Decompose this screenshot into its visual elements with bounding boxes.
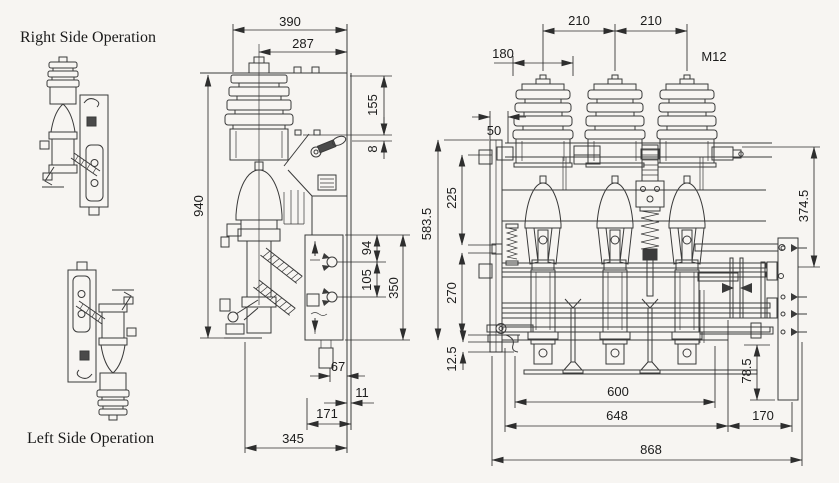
dim-total-868: 868	[640, 442, 662, 457]
paper-background	[0, 0, 839, 483]
dim-width-287: 287	[292, 36, 314, 51]
dim-right-374-5: 374.5	[796, 190, 811, 223]
dim-depth-345: 345	[282, 431, 304, 446]
dim-frame-50: 50	[487, 123, 501, 138]
dim-height-155: 155	[365, 94, 380, 116]
drawing-page: Right Side Operation Left Side Operation	[0, 0, 839, 483]
left-side-operation-label: Left Side Operation	[27, 430, 154, 447]
dim-height-583-5: 583.5	[419, 208, 434, 241]
dim-upper-225: 225	[444, 187, 459, 209]
dim-gap-12-5: 12.5	[444, 346, 459, 371]
dim-width-390: 390	[279, 14, 301, 29]
switchgear-dimension-drawing: Right Side Operation Left Side Operation	[0, 0, 839, 483]
dim-hole-94: 94	[359, 241, 374, 255]
dim-foot-67: 67	[331, 359, 345, 374]
dim-height-940: 940	[191, 195, 206, 217]
dim-mount-600: 600	[607, 384, 629, 399]
dim-span-648: 648	[606, 408, 628, 423]
dim-gap-8: 8	[365, 145, 380, 152]
right-side-operation-label: Right Side Operation	[20, 29, 156, 46]
dim-lower-270: 270	[444, 282, 459, 304]
thread-label-m12: M12	[701, 49, 726, 64]
dim-bushing-180: 180	[492, 46, 514, 61]
dim-pitch-left-210: 210	[568, 13, 590, 28]
dim-plate-350: 350	[386, 277, 401, 299]
dim-pitch-right-210: 210	[640, 13, 662, 28]
dim-hole-105: 105	[359, 269, 374, 291]
dim-base-171: 171	[316, 406, 338, 421]
dim-ext-170: 170	[752, 408, 774, 423]
dim-panel-11: 11	[355, 385, 369, 400]
dim-bracket-78-5: 78.5	[739, 358, 754, 383]
